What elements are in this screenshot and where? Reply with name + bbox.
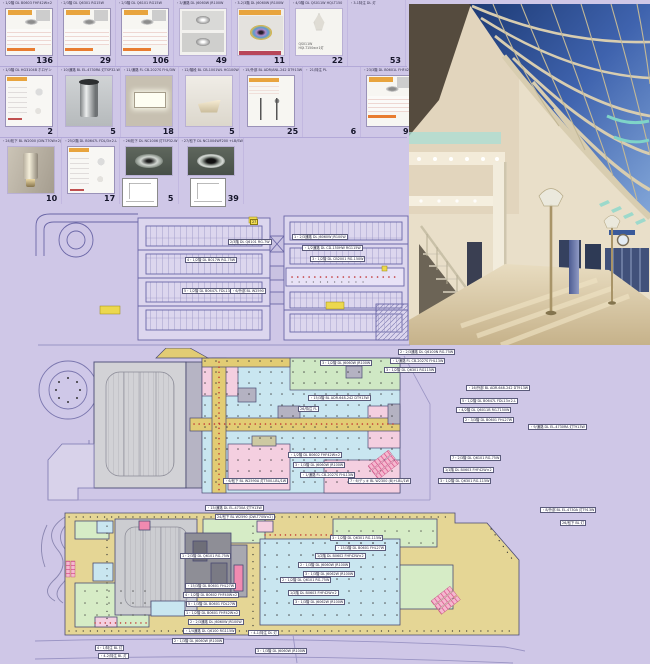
catalog-card: ・12/階段 BL CB-1001WL HG100W 5 (179, 67, 240, 137)
fixture-count: 6 (351, 127, 357, 136)
card-header: ・2/3階 DL Q6101 RG15W (116, 1, 173, 6)
catalog-card: ・2/3階 DL Q6101 RG15W 106 (116, 0, 174, 66)
catalog-row-3: ・24/松下 BL W2000 (DW-T70W×2) 10 ・25/2階 DL… (0, 138, 407, 204)
card-header: ・10/通路 BL EL-4730RA 灯TSP32-W (58, 68, 120, 73)
catalog-card: ・24/松下 BL W2000 (DW-T70W×2) 10 (0, 138, 62, 204)
fixture-thumbnail (125, 146, 173, 176)
plan-annotation: 3・1/2階 DL Q6301 RG-115W (438, 478, 491, 484)
card-header: ・3-1特注 DL 灯 (348, 1, 405, 6)
plan-annotation: 7・2/3階 DL Q6101 RG-75W (450, 455, 501, 461)
card-header: ・ 21/特注 PL (303, 68, 360, 73)
plan-annotation: ・9/通路 DL EL-4730RA 灯T913W (528, 424, 587, 430)
fixture-thumbnail (354, 8, 400, 54)
fixture-thumbnail (63, 8, 111, 56)
fixture-note: QS011W HQI-T150w×1灯 (299, 42, 324, 50)
card-header: ・27/松下 DL NC1004WF200 +LB/SW (179, 139, 243, 144)
fixture-count: 39 (228, 194, 239, 203)
fixture-thumbnail (309, 75, 355, 125)
catalog-card: ・ 21/特注 PL 6 (303, 67, 361, 137)
upper-floor-plan-drawing (38, 348, 440, 503)
catalog-row-1: ・1/2階 DL B0603 FHF42W×2 136 ・2/3階 DL Q63… (0, 0, 407, 67)
fixture-thumbnail (67, 146, 115, 194)
fixture-thumbnail (247, 75, 295, 127)
fixture-thumbnail (179, 8, 227, 56)
fixture-thumbnail (187, 146, 235, 176)
card-header: ・2/3階 DL Q6301 RG15W (58, 1, 115, 6)
fixture-thumbnail (5, 8, 53, 56)
catalog-card: ・1/3階 DL HG3104B ホロゲン 2 (0, 67, 58, 137)
fixture-thumbnail (366, 75, 414, 127)
fixture-count: 17 (104, 194, 115, 203)
card-header: ・3-2/3階 DL J6060W JR100W (232, 1, 289, 6)
plan-annotation: ・4/2階 DL Q6011B RG-T150W (456, 407, 511, 413)
fixture-count: 5 (168, 194, 174, 203)
fixture-count: 10 (46, 194, 57, 203)
card-header: ・26/松下 DL NC1006 灯TSP32-W (120, 139, 177, 144)
fixture-catalog: ・1/2階 DL B0603 FHF42W×2 136 ・2/3階 DL Q63… (0, 0, 407, 204)
fixture-count: 5 (229, 127, 235, 136)
parking-plan: 4・1/2階 DL B017W RG-75W5・1/2階 DL B0647L F… (30, 208, 590, 348)
card-header: ・4/3階 DL QS011W HQI-T150 (290, 1, 347, 6)
catalog-card: ・3/通路 DL J6060W JR100W 49 (174, 0, 232, 66)
fixture-thumbnail (125, 75, 173, 127)
card-header: ・24/松下 BL W2000 (DW-T70W×2) (0, 139, 61, 144)
catalog-card: ・15/外部 BL ADR/ANL-242 DT913W 25 (240, 67, 303, 137)
parking-plan-drawing (30, 208, 412, 348)
fixture-thumbnail (5, 75, 53, 127)
fixture-count: 18 (163, 127, 174, 136)
plan-annotation: 2・3/3階 DL B0601 FHL27W (463, 417, 514, 423)
catalog-card: ・25/2階 DL B0647L FDL/3×2-L 17 (62, 138, 120, 204)
street (35, 635, 525, 663)
catalog-card: ・26/松下 DL NC1006 灯TSP32-W 5 (120, 138, 178, 204)
card-header: ・1/2階 DL B0603 FHF42W×2 (0, 1, 57, 6)
fixture-thumbnail (65, 75, 113, 127)
fixture-thumbnail (7, 146, 55, 194)
catalog-card: ・2/3階 DL Q6301 RG15W 29 (58, 0, 116, 66)
fixture-thumbnail (237, 8, 285, 56)
card-header: ・11/通路 FL CB-2027S FHL/3W (121, 68, 178, 73)
fixture-count: 11 (274, 56, 285, 65)
glass-balustrade (409, 132, 501, 144)
ground-floor-plan-drawing (35, 505, 525, 664)
fixture-count: 53 (390, 56, 401, 65)
fixture-thumbnail: QS011W HQI-T150w×1灯 (295, 8, 343, 56)
card-header: ・1/3階 DL HG3104B ホロゲン (0, 68, 57, 73)
card-header: ・12/階段 BL CB-1001WL HG100W (179, 68, 239, 73)
catalog-card: ・4/3階 DL QS011W HQI-T150 QS011W HQI-T150… (290, 0, 348, 66)
catalog-card: ・3-1特注 DL 灯 53 (348, 0, 406, 66)
fixture-thumbnail (121, 8, 169, 56)
fixture-count: 29 (100, 56, 111, 65)
fixture-count: 49 (216, 56, 227, 65)
card-header: ・25/2階 DL B0647L FDL/3×2-L (62, 139, 119, 144)
fixture-count: 25 (287, 127, 298, 136)
fixture-drawing (122, 178, 158, 207)
plan-annotation: ・16/外部 BL ADR-648-242 DT913W (466, 385, 530, 391)
fixture-count: 2 (47, 127, 53, 136)
ground-floor-plan: ・8/外部 BL EL-4730A 灯T913W26/松下 BL 灯・15/通路… (35, 505, 650, 664)
plan-annotation: 26/松下 BL 灯 (560, 520, 586, 526)
card-header: ・15/外部 BL ADR/ANL-242 DT913W (240, 68, 302, 73)
plan-annotation: ・8/外部 BL EL-4730A 灯T913W (540, 507, 596, 513)
catalog-card: ・1/2階 DL B0603 FHF42W×2 136 (0, 0, 58, 66)
plan-annotation: 1/1階 DL B0603 FHF42W×2 (443, 467, 494, 473)
fixture-drawing (190, 178, 226, 207)
upper-floor-plan: 2・2/3通路 DL Q6100N RG-75W・1/通路 FL CB-2027… (38, 348, 648, 503)
fixture-count: 22 (332, 56, 343, 65)
catalog-row-2: ・1/3階 DL HG3104B ホロゲン 2 ・10/通路 BL EL-473… (0, 67, 407, 138)
fixture-thumbnail (185, 75, 233, 127)
catalog-card: ・3-2/3階 DL J6060W JR100W 11 (232, 0, 290, 66)
plan-annotation: 5・1/2階 DL B0647L FDL13×2-L (460, 398, 518, 404)
fixture-count: 5 (110, 127, 116, 136)
fixture-count: 106 (152, 56, 169, 65)
fixture-count: 136 (36, 56, 53, 65)
circular-ramp (39, 361, 97, 419)
catalog-card: ・27/松下 DL NC1004WF200 +LB/SW 39 (179, 138, 244, 204)
card-header: ・3/通路 DL J6060W JR100W (174, 1, 231, 6)
catalog-card: ・10/通路 BL EL-4730RA 灯TSP32-W 5 (58, 67, 121, 137)
catalog-card: ・11/通路 FL CB-2027S FHL/3W 18 (121, 67, 179, 137)
